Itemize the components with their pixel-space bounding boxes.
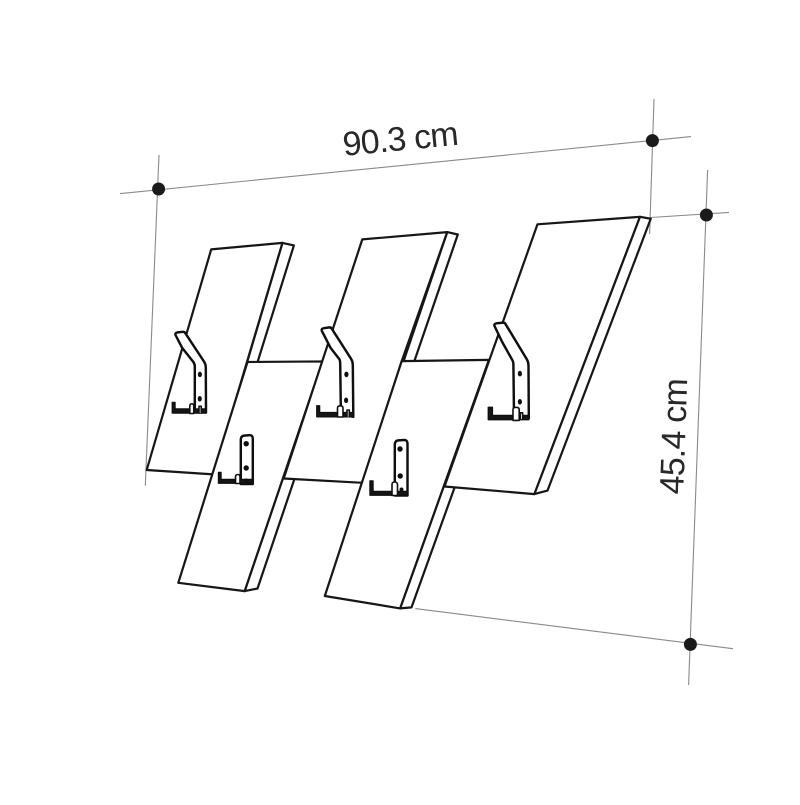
svg-text:45.4 cm: 45.4 cm [653, 378, 695, 495]
